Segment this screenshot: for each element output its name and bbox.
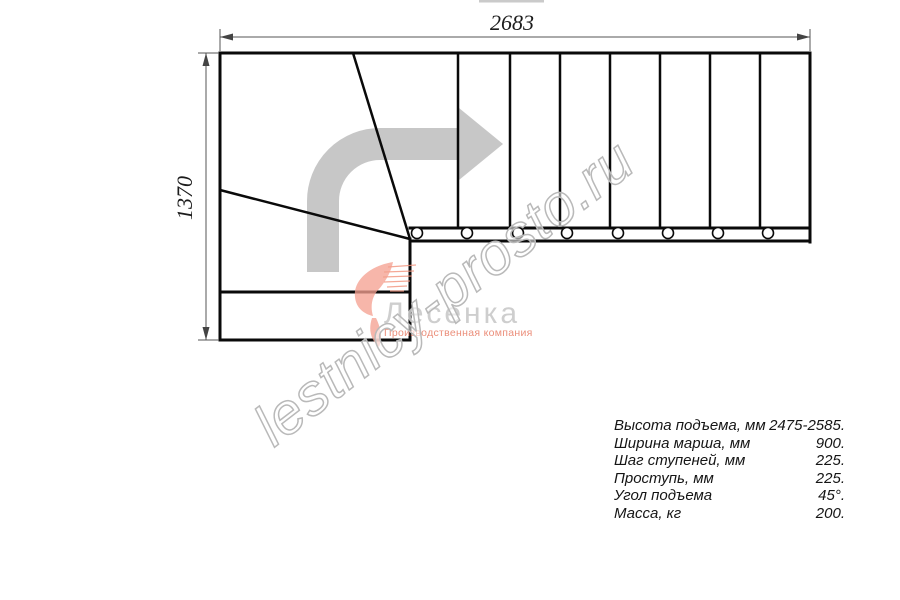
spec-label: Проступь, мм — [614, 470, 714, 488]
spec-value: 225. — [816, 452, 845, 470]
spec-value: 200. — [816, 505, 845, 523]
spec-row: Угол подъема 45°. — [614, 487, 845, 505]
baluster-circle — [412, 228, 423, 239]
left-dimension-label: 1370 — [172, 176, 197, 220]
baluster-circle — [663, 228, 674, 239]
dim-arrow-right-icon — [797, 34, 810, 41]
spec-value: 2475-2585. — [769, 417, 845, 435]
top-cropped-artifact — [479, 0, 544, 3]
top-dimension-label: 2683 — [490, 10, 534, 35]
spec-label: Угол подъема — [614, 487, 712, 505]
baluster-circle — [613, 228, 624, 239]
spec-value: 900. — [816, 435, 845, 453]
direction-arrow-head-icon — [459, 108, 503, 180]
spec-value: 225. — [816, 470, 845, 488]
baluster-circle — [713, 228, 724, 239]
direction-arrow-shaft — [323, 144, 459, 272]
staircase-drawing-page: 2683 1370 Лесенка Производственная компа… — [0, 0, 900, 600]
spec-row: Высота подъема, мм 2475-2585. — [614, 417, 845, 435]
spec-value: 45°. — [818, 487, 845, 505]
baluster-circle — [763, 228, 774, 239]
spec-label: Шаг ступеней, мм — [614, 452, 745, 470]
spec-label: Высота подъема, мм — [614, 417, 766, 435]
dim-arrow-left-icon — [220, 34, 233, 41]
spec-row: Масса, кг 200. — [614, 505, 845, 523]
dimension-arrowheads — [203, 34, 811, 341]
spec-table: Высота подъема, мм 2475-2585. Ширина мар… — [614, 417, 845, 523]
spec-label: Ширина марша, мм — [614, 435, 750, 453]
spec-label: Масса, кг — [614, 505, 681, 523]
dim-arrow-down-icon — [203, 327, 210, 340]
dim-arrow-up-icon — [203, 53, 210, 66]
spec-row: Проступь, мм 225. — [614, 470, 845, 488]
spec-row: Ширина марша, мм 900. — [614, 435, 845, 453]
spec-row: Шаг ступеней, мм 225. — [614, 452, 845, 470]
